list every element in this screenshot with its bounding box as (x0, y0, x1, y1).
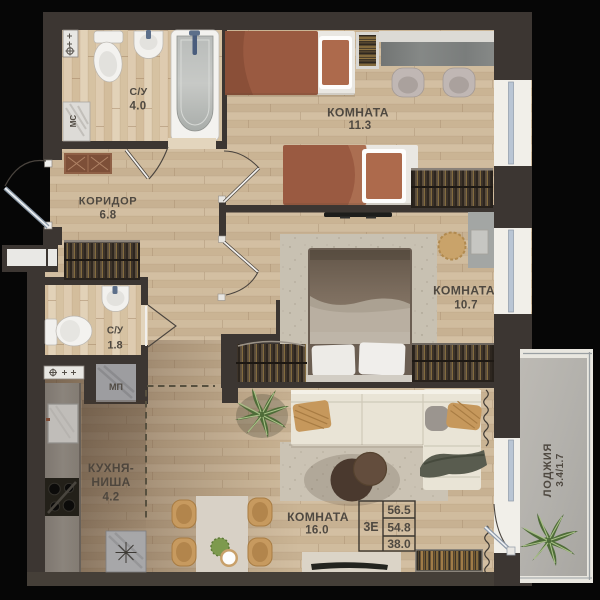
svg-text:ЛОДЖИЯ: ЛОДЖИЯ (542, 443, 554, 498)
svg-text:С/У: С/У (107, 326, 124, 337)
svg-text:4.0: 4.0 (130, 101, 147, 113)
svg-text:56.5: 56.5 (387, 503, 411, 517)
svg-text:1.8: 1.8 (107, 340, 122, 352)
svg-text:С/У: С/У (130, 86, 148, 98)
svg-text:16.0: 16.0 (305, 525, 329, 537)
svg-text:КОМНАТА: КОМНАТА (327, 106, 389, 120)
svg-text:3Е: 3Е (363, 520, 378, 534)
svg-text:11.3: 11.3 (349, 120, 372, 132)
svg-text:КОМНАТА: КОМНАТА (433, 284, 495, 298)
svg-text:3.4/1.7: 3.4/1.7 (555, 453, 566, 486)
svg-text:38.0: 38.0 (387, 537, 411, 551)
svg-text:КОРИДОР: КОРИДОР (79, 196, 137, 208)
svg-text:МС: МС (69, 115, 78, 128)
svg-text:10.7: 10.7 (454, 300, 478, 312)
svg-text:МП: МП (109, 382, 123, 392)
svg-text:6.8: 6.8 (100, 210, 117, 222)
svg-text:54.8: 54.8 (387, 521, 411, 535)
svg-text:КОМНАТА: КОМНАТА (287, 510, 349, 524)
